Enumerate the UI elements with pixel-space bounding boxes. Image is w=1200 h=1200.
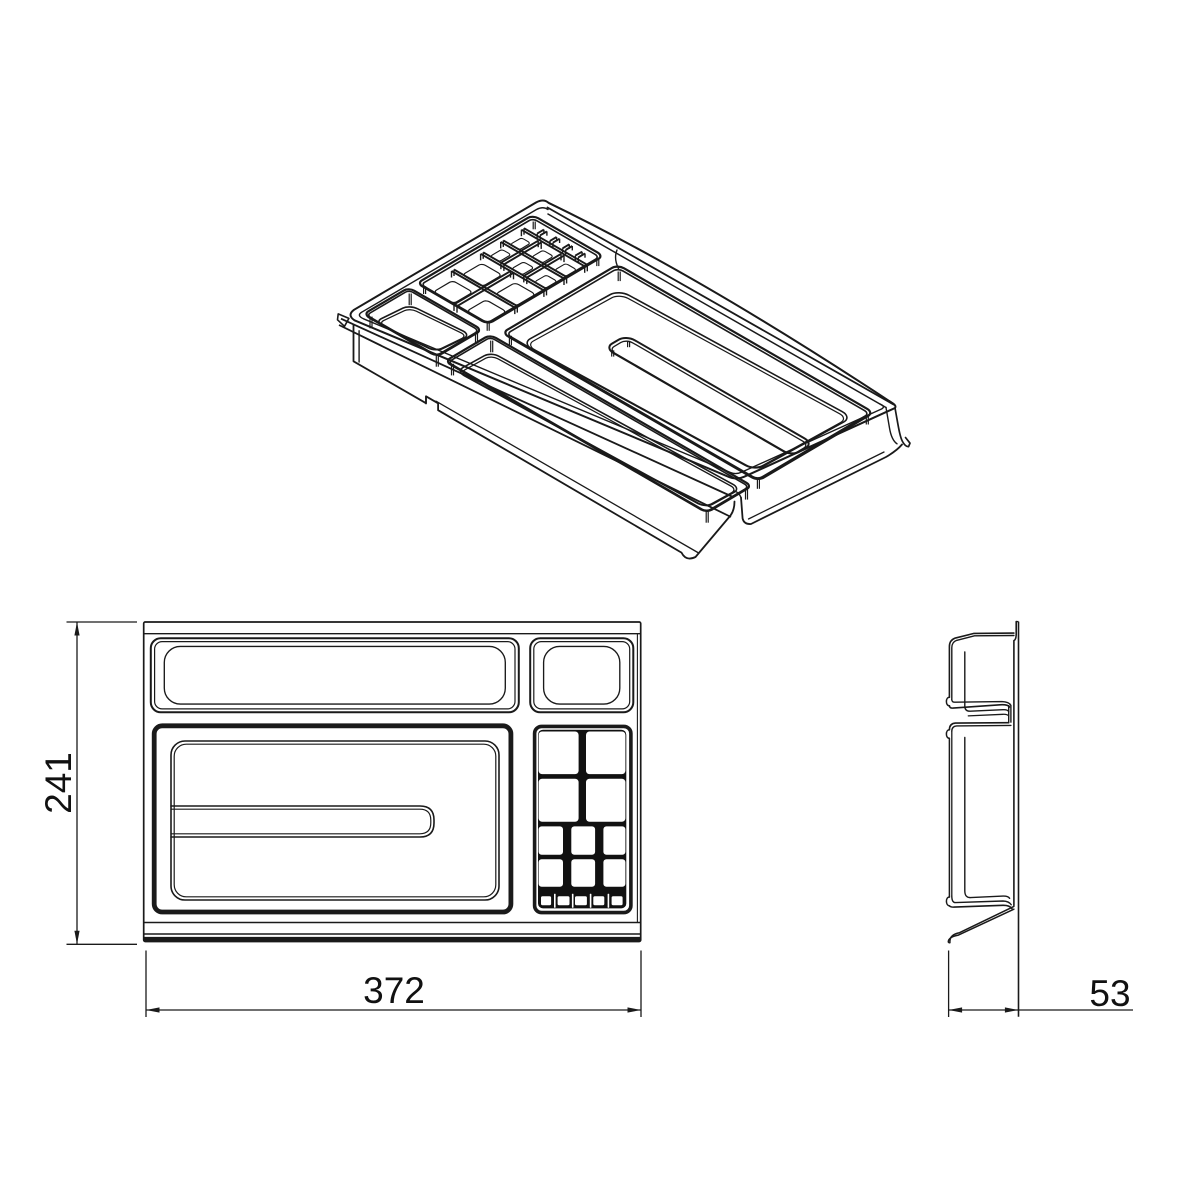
svg-text:372: 372: [363, 970, 425, 1011]
svg-text:241: 241: [38, 752, 79, 814]
svg-text:53: 53: [1089, 973, 1130, 1014]
